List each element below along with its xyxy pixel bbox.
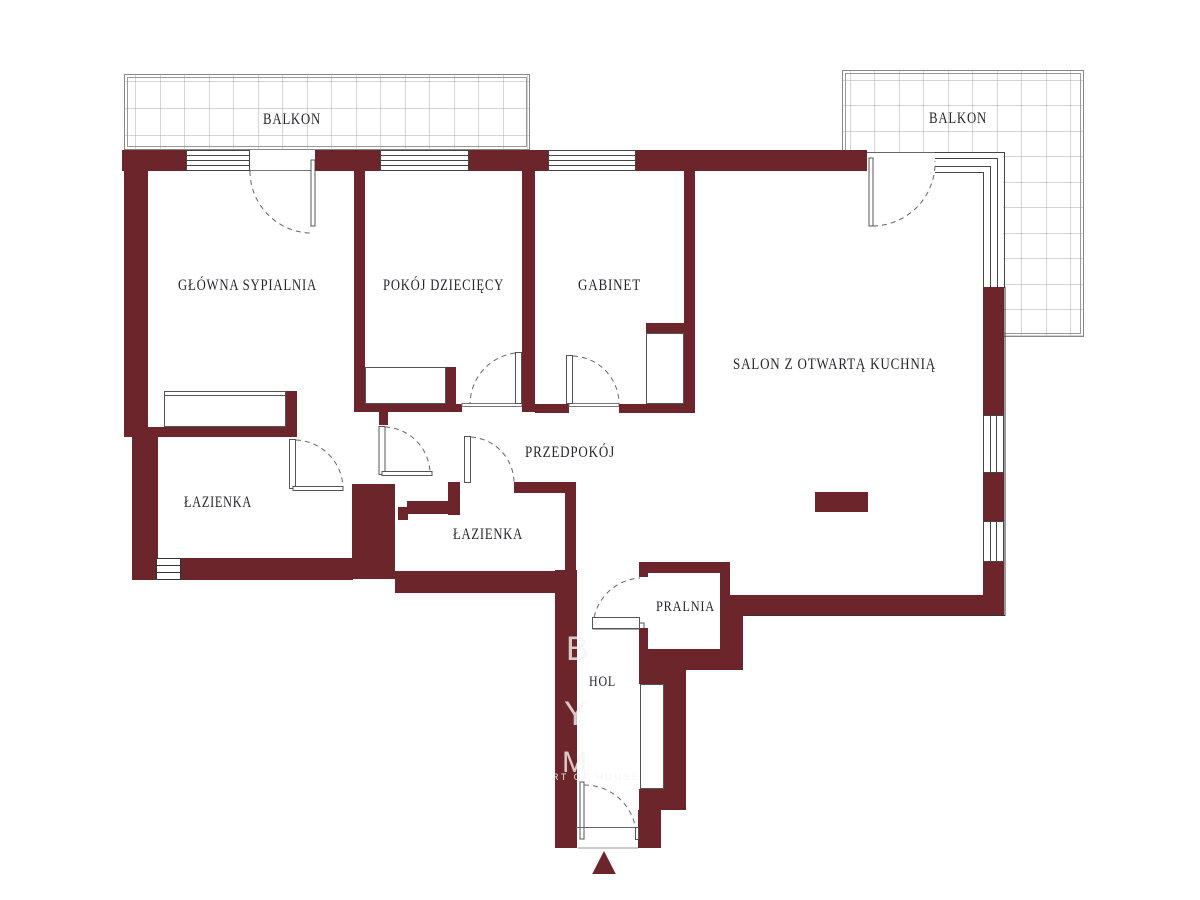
svg-text:ŁAZIENKA: ŁAZIENKA bbox=[453, 526, 523, 543]
svg-text:ŁAZIENKA: ŁAZIENKA bbox=[184, 494, 252, 511]
svg-text:GŁÓWNA SYPIALNIA: GŁÓWNA SYPIALNIA bbox=[178, 275, 317, 294]
svg-text:RT OF HOUSE: RT OF HOUSE bbox=[552, 772, 641, 782]
svg-text:BALKON: BALKON bbox=[263, 111, 321, 128]
svg-text:POKÓJ DZIECIĘCY: POKÓJ DZIECIĘCY bbox=[383, 275, 504, 294]
svg-text:BALKON: BALKON bbox=[929, 110, 987, 127]
svg-text:PRALNIA: PRALNIA bbox=[656, 599, 715, 615]
svg-text:PRZEDPOKÓJ: PRZEDPOKÓJ bbox=[525, 442, 615, 461]
svg-text:Y: Y bbox=[564, 695, 587, 733]
svg-text:B: B bbox=[566, 630, 589, 668]
svg-text:GABINET: GABINET bbox=[578, 277, 641, 294]
svg-text:HOL: HOL bbox=[589, 674, 616, 690]
svg-text:SALON Z OTWARTĄ KUCHNIĄ: SALON Z OTWARTĄ KUCHNIĄ bbox=[733, 356, 936, 373]
